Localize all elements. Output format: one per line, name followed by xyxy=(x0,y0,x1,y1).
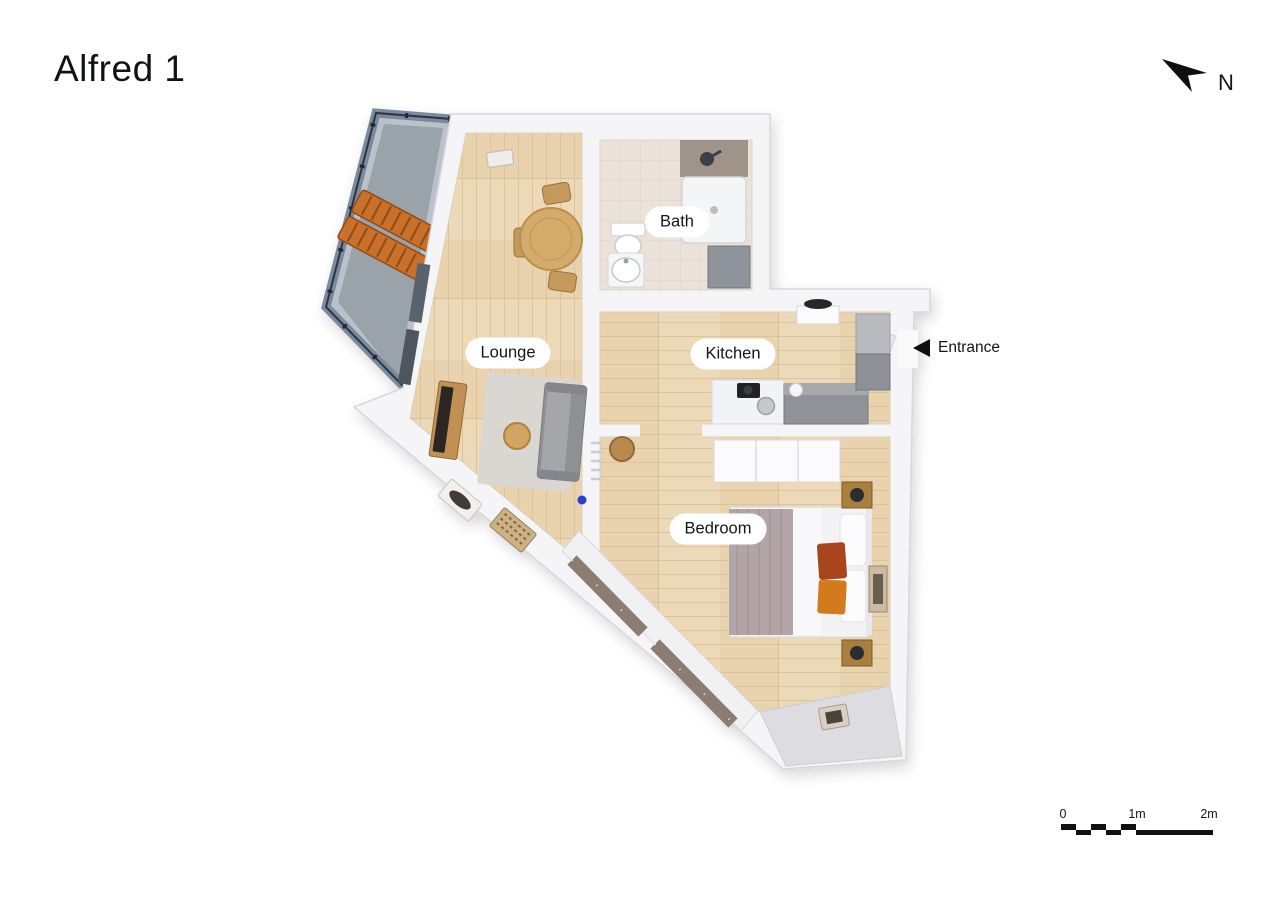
shower-wall-panel xyxy=(680,140,748,177)
blue-object xyxy=(578,496,587,505)
sofa xyxy=(537,382,587,481)
bed-pillow-rust xyxy=(817,542,847,580)
vestibule-mat xyxy=(818,704,849,731)
room-label-lounge: Lounge xyxy=(465,338,550,369)
entrance-arrow-icon xyxy=(913,339,930,357)
floorplan-graphic xyxy=(0,0,1280,905)
bedroom-door-opening xyxy=(640,420,702,438)
scale-tick-1m: 1m xyxy=(1128,808,1145,821)
tall-cabinet-upper xyxy=(856,314,890,354)
coffee-table xyxy=(504,423,530,449)
tall-cabinet-lower xyxy=(856,354,890,390)
entrance-label: Entrance xyxy=(938,339,1000,357)
wall-art xyxy=(869,566,887,612)
kitchen-sink xyxy=(758,398,775,415)
entrance-marker: Entrance xyxy=(913,339,1000,357)
scale-tick-2m: 2m xyxy=(1200,808,1217,821)
counter-jar xyxy=(790,384,803,397)
ceiling-vent xyxy=(486,149,514,167)
lamp-bottom xyxy=(850,646,864,660)
room-label-kitchen: Kitchen xyxy=(690,339,775,370)
wardrobe xyxy=(714,440,840,482)
kitchen-hob-vent xyxy=(804,299,832,309)
scale-bar-segments xyxy=(1061,824,1213,835)
lamp-top xyxy=(850,488,864,502)
bath-cabinet xyxy=(708,246,750,288)
room-label-bath: Bath xyxy=(645,207,709,238)
scale-tick-0: 0 xyxy=(1060,808,1067,821)
room-label-bedroom: Bedroom xyxy=(670,514,767,545)
bed-pillow-orange xyxy=(817,579,847,614)
floorplan-page: Alfred 1 N xyxy=(0,0,1280,905)
bathroom-sink xyxy=(608,253,644,287)
scale-bar: 0 1m 2m xyxy=(1061,808,1213,835)
stool xyxy=(610,437,634,461)
